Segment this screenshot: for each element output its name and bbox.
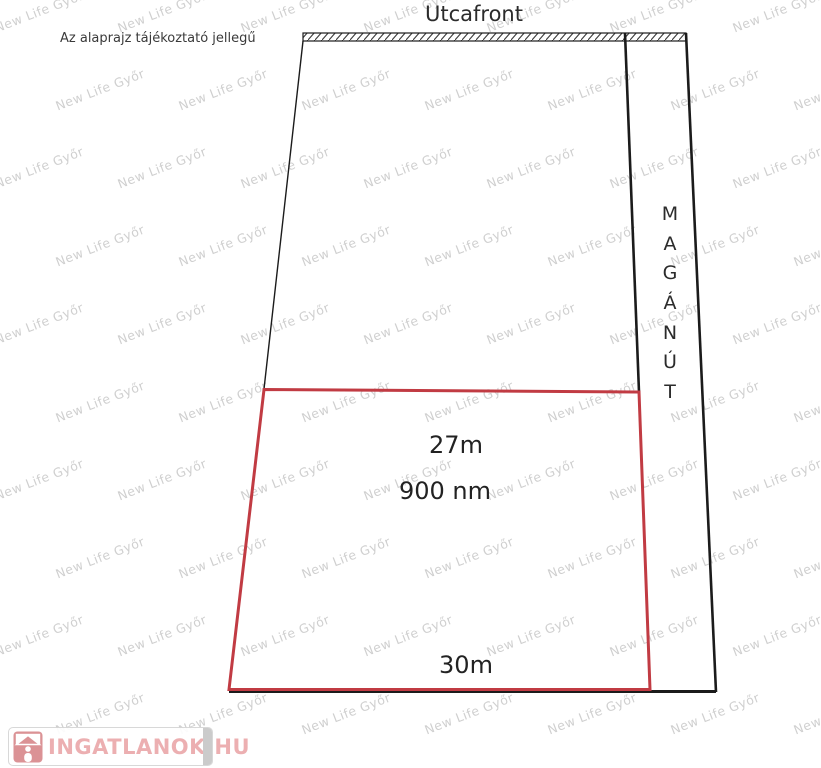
site-plan-drawing: [0, 0, 821, 768]
ingatlanok-logo: INGATLANOK.HU: [8, 727, 213, 766]
plot-left-edge-line: [264, 41, 303, 389]
logo-pill-tab: [203, 728, 212, 765]
highlighted-plot-outline: [229, 390, 650, 690]
street-front-hatch-band: [303, 33, 686, 41]
house-icon: [13, 731, 43, 763]
private-road-right-line: [686, 33, 716, 692]
site-plan-canvas: { "header": { "disclaimer": "Az alaprajz…: [0, 0, 821, 768]
logo-text: INGATLANOK.HU: [48, 735, 250, 759]
private-road-left-line: [625, 33, 639, 392]
